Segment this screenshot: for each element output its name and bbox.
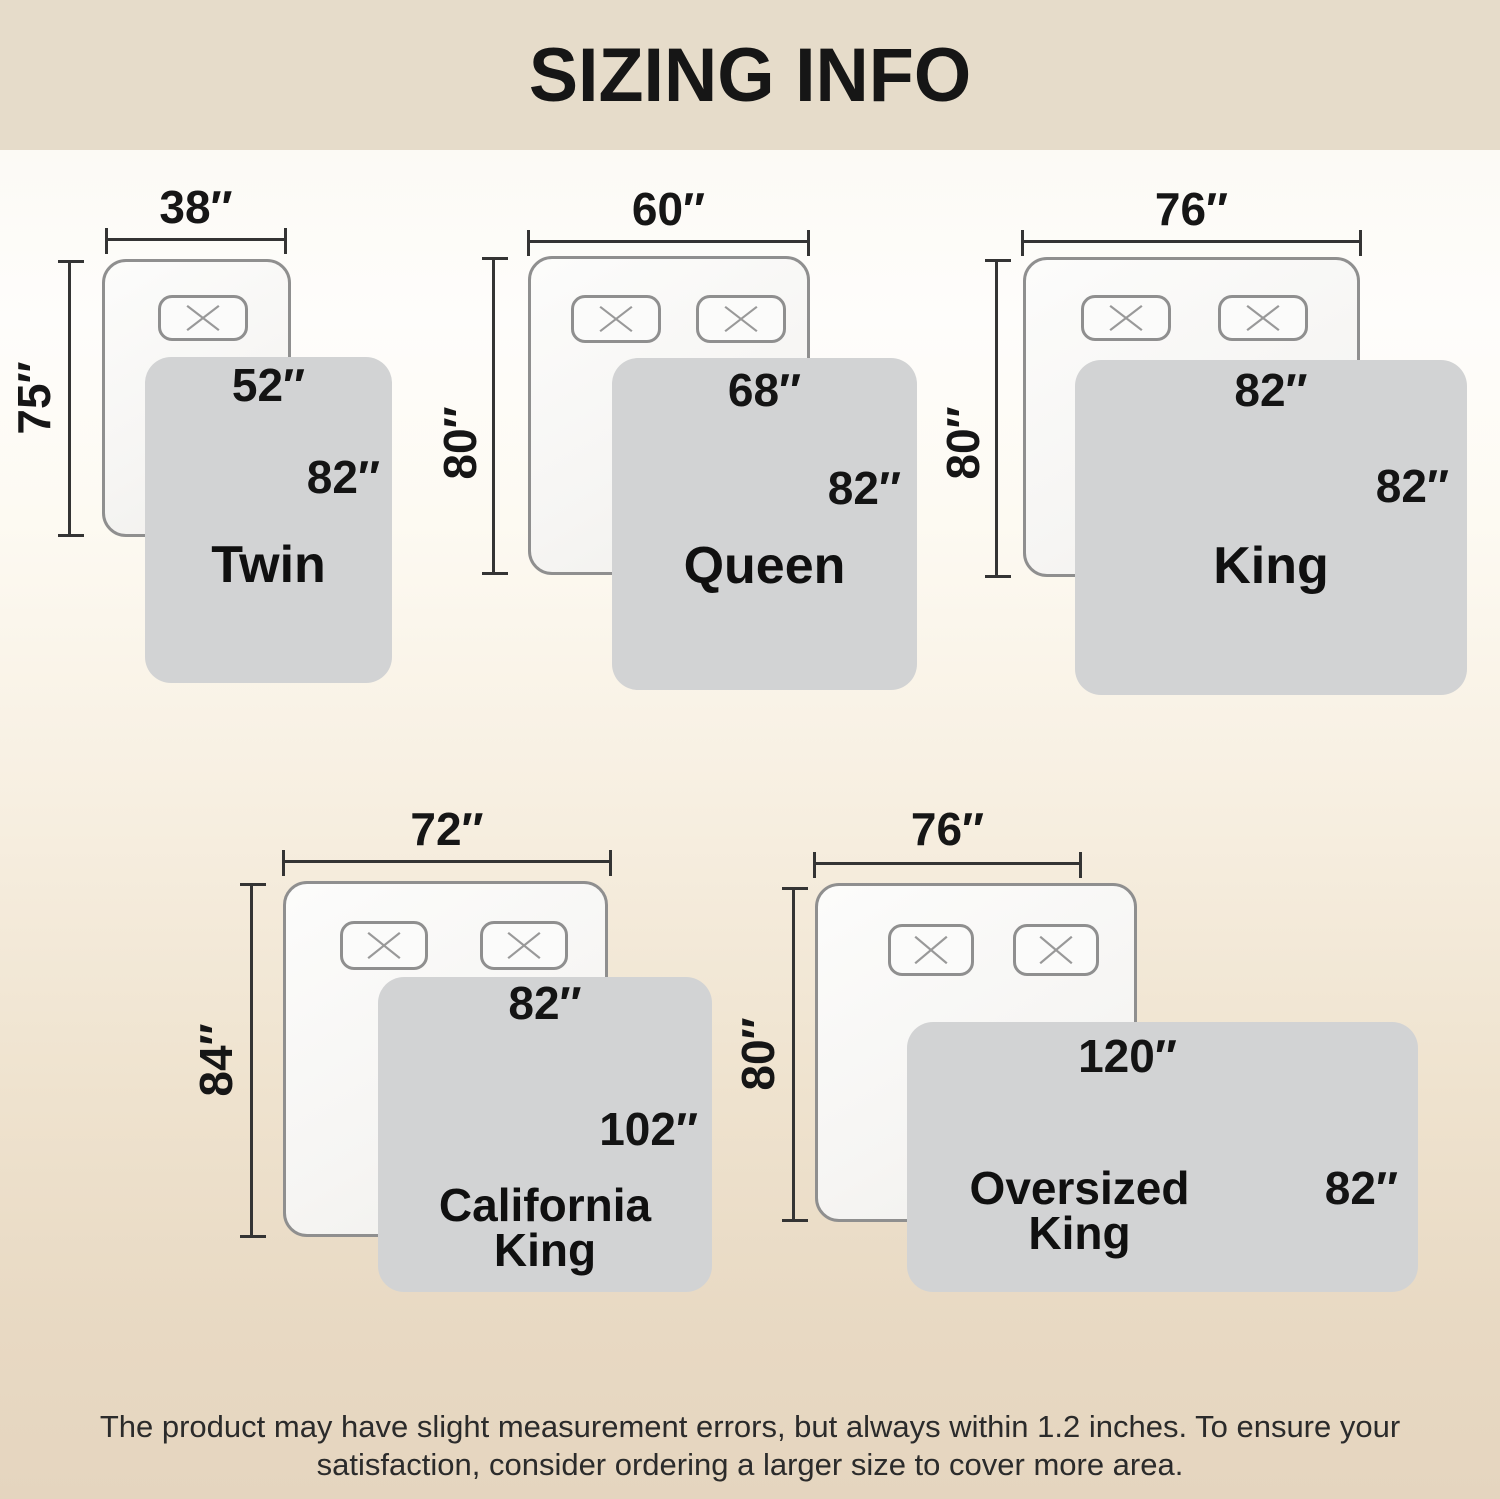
twin-length-dim-line (68, 260, 71, 537)
twin-width-dim-label: 38″ (105, 184, 287, 230)
blanket-length-label: 82″ (828, 464, 901, 512)
queen-length-dim-line (492, 257, 495, 575)
king-width-dim-label: 76″ (1021, 186, 1362, 232)
pillow (571, 295, 661, 343)
blanket-width-label: 68″ (612, 366, 917, 414)
size-name-line2: King (907, 1211, 1252, 1256)
king-length-dim-label: 80″ (940, 383, 986, 503)
calking-width-dim-line (282, 860, 612, 863)
size-name-label: Twin (145, 539, 392, 591)
size-name-line1: California (378, 1183, 712, 1228)
pillow-x-icon (699, 298, 783, 340)
footer-note: The product may have slight measurement … (0, 1408, 1500, 1484)
size-name-label: California King (378, 1183, 712, 1273)
ovking-blanket: 120″ 82″ Oversized King (907, 1022, 1418, 1292)
size-name-label: Oversized King (907, 1166, 1252, 1256)
blanket-length-label: 82″ (307, 453, 380, 501)
sizing-infographic: SIZING INFO 38″ 75″ 52″ 82″ Twin 60″ 80″… (0, 0, 1500, 1499)
size-name-line2: King (378, 1228, 712, 1273)
queen-blanket: 68″ 82″ Queen (612, 358, 917, 690)
pillow-x-icon (574, 298, 658, 340)
ovking-length-dim-line (792, 887, 795, 1222)
size-name-label: Queen (612, 540, 917, 592)
pillow (1218, 295, 1308, 341)
pillow (1081, 295, 1171, 341)
pillow (888, 924, 974, 976)
pillow (1013, 924, 1099, 976)
twin-width-dim-line (105, 238, 287, 241)
blanket-length-label: 102″ (599, 1105, 698, 1153)
pillow (158, 295, 248, 341)
pillow-x-icon (1221, 298, 1305, 338)
calking-length-dim-line (250, 883, 253, 1238)
blanket-width-label: 52″ (145, 361, 392, 409)
footer-line-1: The product may have slight measurement … (0, 1408, 1500, 1446)
page-title: SIZING INFO (529, 32, 971, 119)
queen-length-dim-label: 80″ (437, 383, 483, 503)
twin-length-dim-label: 75″ (11, 338, 57, 458)
ovking-width-dim-label: 76″ (813, 806, 1082, 852)
pillow-x-icon (1084, 298, 1168, 338)
blanket-width-label: 82″ (378, 979, 712, 1027)
ovking-length-dim-label: 80″ (735, 994, 781, 1114)
calking-width-dim-label: 72″ (282, 806, 612, 852)
blanket-width-label: 120″ (907, 1032, 1348, 1080)
pillow (480, 921, 568, 970)
pillow-x-icon (891, 927, 971, 973)
blanket-width-label: 82″ (1075, 366, 1467, 414)
pillow (340, 921, 428, 970)
king-length-dim-line (995, 259, 998, 578)
header-banner: SIZING INFO (0, 0, 1500, 150)
pillow-x-icon (161, 298, 245, 338)
blanket-length-label: 82″ (1376, 462, 1449, 510)
queen-width-dim-label: 60″ (527, 186, 810, 232)
pillow (696, 295, 786, 343)
size-name-line1: Oversized (907, 1166, 1252, 1211)
pillow-x-icon (483, 924, 565, 967)
ovking-width-dim-line (813, 862, 1082, 865)
blanket-length-label: 82″ (1325, 1164, 1398, 1212)
pillow-x-icon (1016, 927, 1096, 973)
king-blanket: 82″ 82″ King (1075, 360, 1467, 695)
footer-line-2: satisfaction, consider ordering a larger… (0, 1446, 1500, 1484)
pillow-x-icon (343, 924, 425, 967)
queen-width-dim-line (527, 240, 810, 243)
king-width-dim-line (1021, 240, 1362, 243)
twin-blanket: 52″ 82″ Twin (145, 357, 392, 683)
calking-length-dim-label: 84″ (193, 1000, 239, 1120)
calking-blanket: 82″ 102″ California King (378, 977, 712, 1292)
size-name-label: King (1075, 540, 1467, 592)
